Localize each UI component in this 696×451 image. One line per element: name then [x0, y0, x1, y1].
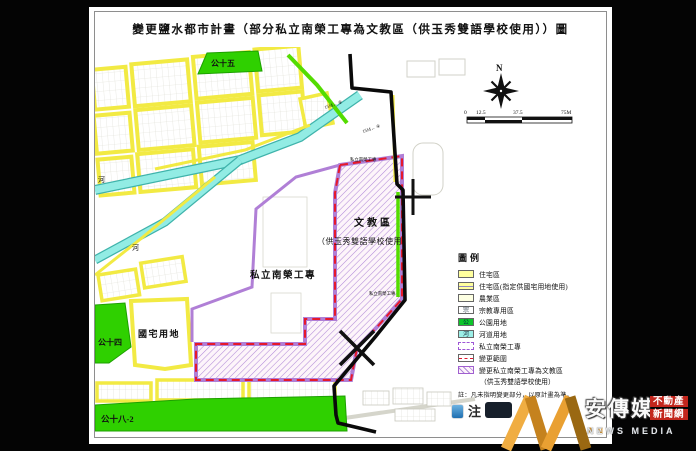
watermark: 注 安傳媒 AN NEWS MEDIA 不動產 新聞網 — [438, 389, 696, 451]
north-label: N — [496, 63, 503, 73]
label-edu-zone: 文教區 — [354, 216, 393, 229]
legend-item-agriculture: 農業區 — [458, 292, 608, 304]
label-river-1: 河 — [98, 176, 105, 184]
plan-document: 變更鹽水都市計畫（部分私立南榮工專為文教區（供玉秀雙語學校使用））圖 — [89, 7, 612, 444]
scale-bar: 0 12.5 37.5 75M — [464, 110, 572, 123]
label-campus-top: 私立南榮工專 — [350, 156, 377, 163]
campus-area — [192, 165, 340, 343]
label-campus-big: 私立南榮工專 — [249, 269, 316, 281]
tag-realestate: 不動產 — [650, 396, 688, 407]
legend-label-line2: （供玉秀雙語學校使用） — [480, 376, 608, 386]
legend-label: 住宅區(指定供國宅用地使用) — [479, 281, 568, 291]
note-label: 注 — [468, 401, 481, 420]
note-doc-icon — [452, 405, 463, 418]
legend-item-river: 河 河道用地 — [458, 328, 608, 340]
legend-label: 公園用地 — [479, 317, 507, 327]
change-boundary-swatch — [458, 354, 474, 362]
tag-news: 新聞網 — [650, 409, 688, 420]
religion-swatch: 宗 — [458, 306, 474, 314]
label-park-15: 公十五 — [211, 58, 235, 68]
legend-label: 農業區 — [479, 293, 500, 303]
brand-sub-rest: NEWS MEDIA — [587, 426, 676, 436]
legend-label: 宗教專用區 — [479, 305, 514, 315]
legend-item-park: 公 公園用地 — [458, 316, 608, 328]
brand-name: 安傳媒 — [585, 393, 654, 423]
brand-tags: 不動產 新聞網 — [650, 396, 696, 422]
park-14-area — [95, 303, 131, 363]
label-park-18: 公十八-2 — [101, 414, 134, 424]
page-title: 變更鹽水都市計畫（部分私立南榮工專為文教區（供玉秀雙語學校使用））圖 — [89, 21, 612, 37]
legend-item-change-boundary: 變更範圍 — [458, 352, 608, 364]
label-public-housing: 國宅用地 — [138, 328, 180, 339]
legend-label: 私立南榮工專 — [479, 341, 521, 351]
legend-item-campus: 私立南榮工專 — [458, 340, 608, 352]
scale-tick-1: 12.5 — [476, 110, 486, 116]
legend-label: 河道用地 — [479, 329, 507, 339]
label-edu-zone-sub: （供玉秀雙語學校使用） — [317, 236, 411, 246]
north-arrow: N — [483, 63, 519, 109]
river-swatch: 河 — [458, 330, 474, 338]
campus-swatch — [458, 342, 474, 350]
faint-structures-top-right — [407, 59, 465, 195]
residential-swatch — [458, 270, 474, 278]
change-area-swatch — [458, 366, 474, 374]
label-park-14: 公十四 — [98, 337, 122, 347]
scale-tick-0: 0 — [464, 110, 467, 116]
screenshot-stage: 變更鹽水都市計畫（部分私立南榮工專為文教區（供玉秀雙語學校使用））圖 — [0, 0, 696, 451]
legend-item-residential: 住宅區 — [458, 268, 608, 280]
scale-tick-2: 37.5 — [513, 110, 523, 116]
legend-label: 變更範圍 — [479, 353, 507, 363]
scale-tick-3: 75M — [561, 110, 572, 116]
label-road-2: 15M← ④ — [362, 123, 382, 134]
map-legend: 圖例 住宅區 住宅區(指定供國宅用地使用) 農業區 宗 宗教專用區 公 公園用地 — [458, 251, 608, 399]
label-river-2: 河 — [132, 244, 139, 252]
legend-item-change-area: 變更私立南榮工專為文教區 — [458, 364, 608, 376]
residential-housing-swatch — [458, 282, 474, 290]
legend-title: 圖例 — [458, 251, 608, 264]
legend-item-residential-housing: 住宅區(指定供國宅用地使用) — [458, 280, 608, 292]
legend-label: 變更私立南榮工專為文教區 — [479, 365, 563, 375]
legend-item-religion: 宗 宗教專用區 — [458, 304, 608, 316]
label-campus-right: 私立南榮工專 — [369, 290, 396, 297]
agriculture-swatch — [458, 294, 474, 302]
legend-label: 住宅區 — [479, 269, 500, 279]
park-swatch: 公 — [458, 318, 474, 326]
